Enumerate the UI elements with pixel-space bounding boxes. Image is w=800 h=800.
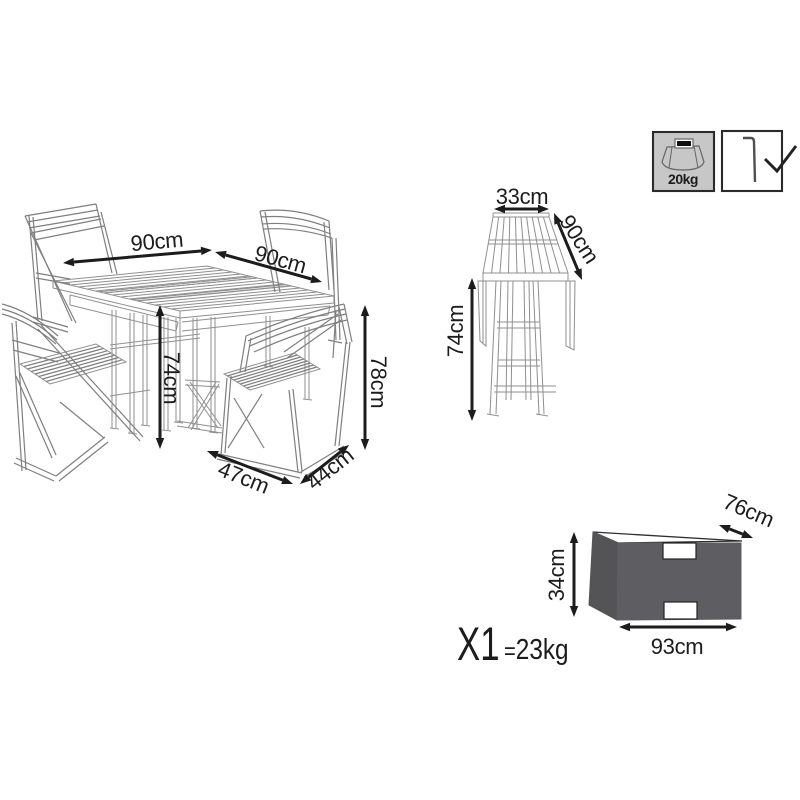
svg-text:33cm: 33cm xyxy=(496,184,549,209)
svg-text:74cm: 74cm xyxy=(443,305,468,358)
svg-text:90cm: 90cm xyxy=(130,227,185,256)
svg-text:=23kg: =23kg xyxy=(504,633,569,665)
svg-text:34cm: 34cm xyxy=(544,549,569,602)
svg-text:X1: X1 xyxy=(457,618,500,670)
svg-text:93cm: 93cm xyxy=(651,634,704,659)
svg-text:74cm: 74cm xyxy=(159,352,184,405)
svg-text:20kg: 20kg xyxy=(668,171,698,187)
svg-text:78cm: 78cm xyxy=(366,356,391,409)
